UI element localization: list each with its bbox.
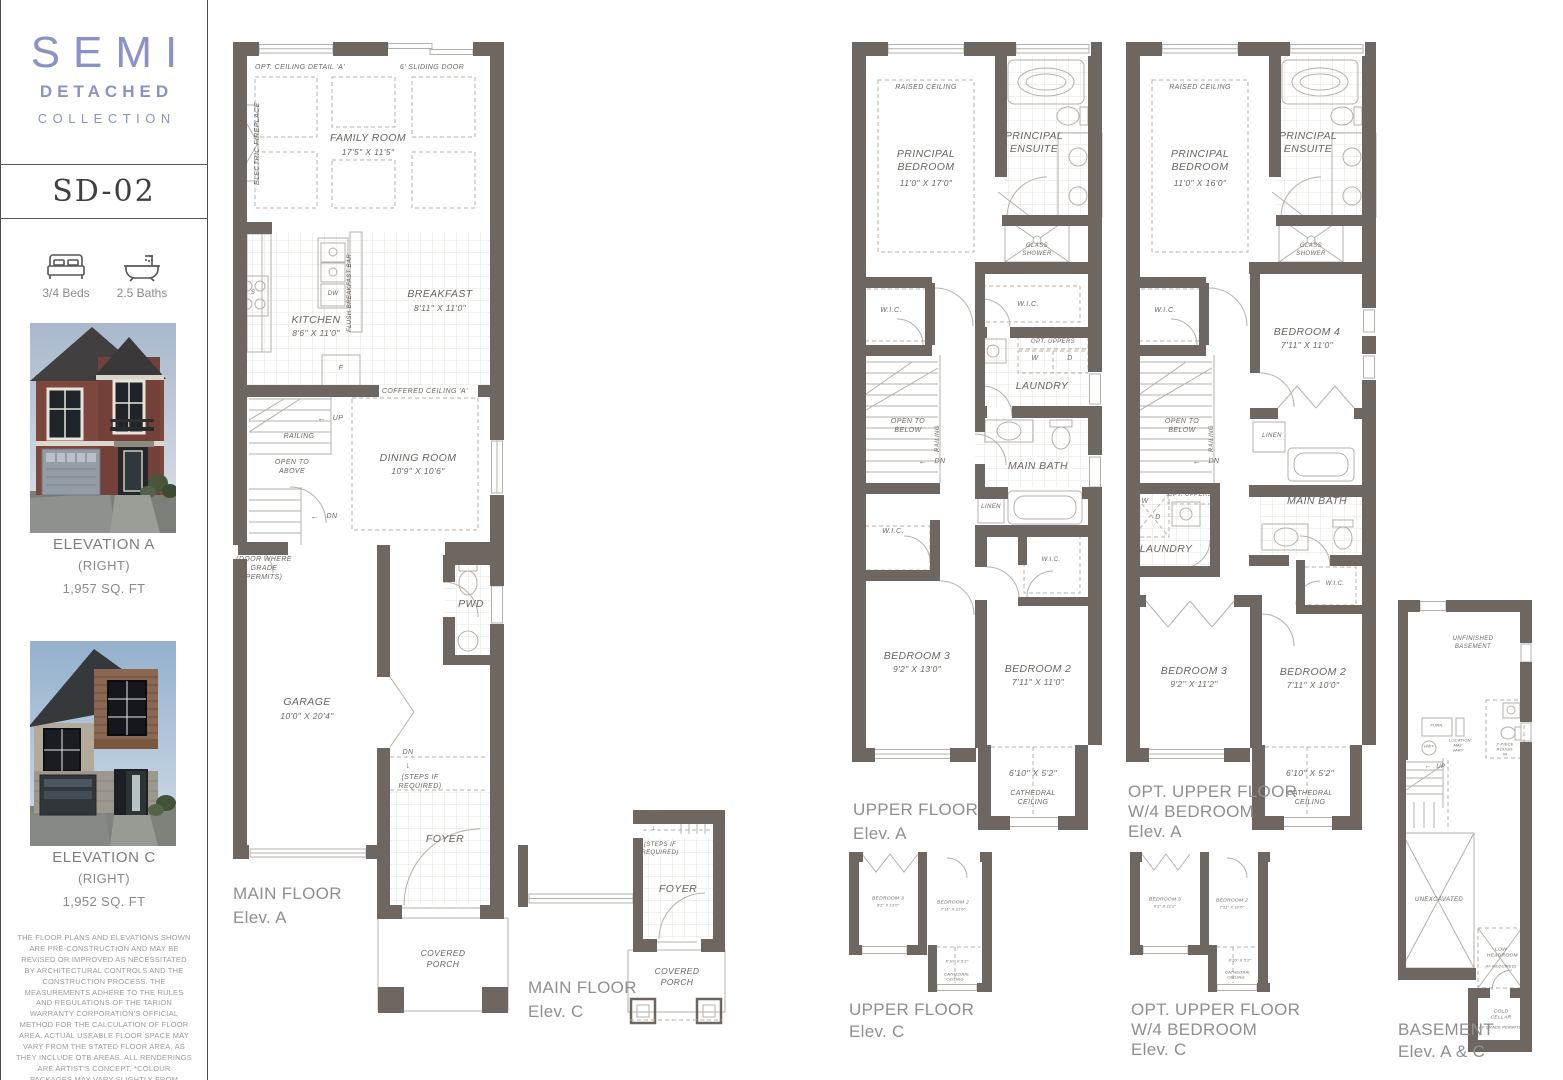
label-up: UP [333,415,344,424]
room-dim-bedroom3-a: 9'2" X 13'0" [893,664,941,675]
dn-arrow-hall: ↓ [406,760,411,771]
room-dim-breakfast: 8'11" X 11'0" [414,303,466,314]
label-if-required: (IF REQUIRED) [1486,964,1517,969]
mini-nook-dim-c: 6'10" X 5'2" [946,959,969,964]
room-dim-kitchen: 8'6" X 11'0" [292,328,339,339]
label-raised-ceiling-o: RAISED CEILING [1169,84,1231,93]
logo-line-collection: COLLECTION [0,111,208,126]
room-label-main-bath-a: MAIN BATH [1008,460,1068,473]
brochure-page: SEMI DETACHED COLLECTION SD-02 3/4 Beds … [0,0,1563,1080]
caption-main-a-1: MAIN FLOOR [233,884,342,904]
elevation-a-area: 1,957 SQ. FT [0,581,208,596]
label-linen-o: LINEN [1262,433,1282,441]
nook-dim-o: 6'10" X 5'2" [1286,768,1334,779]
label-railing-a: RAILING [935,425,941,452]
mini-label-bedroom2-c: BEDROOM 2 [937,899,969,905]
room-label-foyer: FOYER [426,833,464,846]
elevation-c-subtitle: (RIGHT) [0,871,208,886]
mini-dim-bedroom2-oc: 7'11" X 10'0" [1220,905,1245,910]
dn-arrow-main: ← [311,511,320,522]
room-label-covered-porch-c: COVERED PORCH [645,966,709,987]
caption-main-a-2: Elev. A [233,908,287,928]
room-dim-principal-bedroom-o: 11'0" X 16'0" [1174,178,1227,189]
label-steps-if-required-c: (STEPS IF REQUIRED) [635,842,685,857]
logo-line-semi: SEMI [0,28,208,78]
mini-cathedral-oc: CATHEDRAL CEILING [1225,970,1247,980]
label-opt-coffered: OPT. COFFERED CEILING 'A' [362,388,467,397]
label-dryer-a: D [1067,355,1072,364]
label-cathedral-a: CATHEDRAL CEILING [1002,790,1064,808]
label-hwt: HWT [1424,744,1434,749]
label-washer-o: W [1141,498,1148,507]
label-opt-ceiling-detail: OPT. CEILING DETAIL 'A' [255,64,345,73]
elevation-a-title: ELEVATION A [0,536,208,553]
label-washer-a: W [1031,355,1038,364]
caption-upper-a-1: UPPER FLOOR [853,800,978,820]
room-label-kitchen: KITCHEN [292,314,341,327]
label-flush-breakfast-bar: FLUSH BREAKFAST BAR [347,254,353,332]
elevation-a-rendering [30,323,176,533]
elevation-c-rendering [30,641,176,846]
caption-upper-c-1: UPPER FLOOR [849,1000,974,1020]
label-dishwasher: DW [328,291,339,299]
up-arrow-basement: ← [1424,763,1431,772]
room-label-bedroom2-a: BEDROOM 2 [1005,663,1072,676]
mini-dim-bedroom2-c: 7'11" X 11'0" [941,907,966,912]
label-glass-shower-o: GLASS SHOWER [1288,243,1334,258]
dn-arrow-o: ← [1193,456,1202,467]
label-raised-ceiling-a: RAISED CEILING [895,84,957,93]
room-dim-bedroom3-o: 9'2" X 11'2" [1170,679,1217,690]
label-furnace: FURN. [1430,723,1443,728]
mini-nook-dim-oc: 6'10" X 5'2" [1229,958,1252,963]
label-sliding-door: 6' SLIDING DOOR [400,64,464,73]
mini-label-bedroom3-c: BEDROOM 3 [872,895,904,901]
bed-icon [44,252,88,282]
mini-label-bedroom3-oc: BEDROOM 3 [1149,896,1181,902]
label-stove: S [251,290,255,298]
room-label-breakfast: BREAKFAST [407,288,472,301]
caption-basement-1: BASEMENT [1398,1020,1494,1040]
label-unexcavated: UNEXCAVATED [1415,897,1463,905]
label-railing-o: RAILING [1209,425,1215,452]
elevation-c-area: 1,952 SQ. FT [0,894,208,909]
label-up-basement: UP [1436,764,1445,772]
sidebar-rule-top [0,164,208,165]
room-label-principal-ensuite-o: PRINCIPAL ENSUITE [1266,130,1350,156]
label-open-to-below-o: OPEN TO BELOW [1153,418,1211,436]
label-low-headroom: LOW HEADROOM [1487,946,1516,958]
room-label-laundry-a: LAUNDRY [1016,380,1069,393]
label-location-may-vary: LOCATION MAY VARY [1449,738,1467,753]
label-wic1-a: W.I.C. [880,307,902,316]
beds-count: 3/4 Beds [42,286,89,300]
caption-opt-a-1: OPT. UPPER FLOOR [1128,782,1297,802]
caption-main-c-2: Elev. C [528,1002,584,1022]
elevation-c-title: ELEVATION C [0,849,208,866]
caption-basement-2: Elev. A & C [1398,1042,1485,1062]
model-number: SD-02 [0,174,208,209]
up-arrow: ← [318,413,327,424]
label-open-to-below-a: OPEN TO BELOW [879,418,937,436]
room-dim-dining: 10'9" X 10'6" [391,466,444,477]
caption-upper-a-2: Elev. A [853,824,907,844]
caption-opt-c-2: W/4 BEDROOM [1131,1020,1257,1040]
label-open-to-above: OPEN TO ABOVE [263,459,321,477]
label-cold-cellar: COLD CELLAR [1489,1008,1514,1020]
room-label-bedroom2-o: BEDROOM 2 [1280,666,1347,679]
room-dim-garage: 10'0" X 20'4" [280,711,333,722]
room-label-principal-ensuite-a: PRINCIPAL ENSUITE [992,130,1076,156]
dn-arrow-a: ← [919,456,928,467]
label-door-where-grade: (DOOR WHERE GRADE PERMITS) [233,556,295,582]
nook-dim-a: 6'10" X 5'2" [1009,768,1057,779]
room-label-garage: GARAGE [283,696,330,709]
label-opt-uppers-o: OPT. UPPERS [1168,492,1212,500]
label-dn-hall: DN [403,749,414,758]
sidebar-rule-bottom [0,218,208,219]
caption-opt-c-1: OPT. UPPER FLOOR [1131,1000,1300,1020]
legal-disclaimer: THE FLOOR PLANS AND ELEVATIONS SHOWN ARE… [16,933,192,1080]
label-dryer-o: D [1155,514,1160,523]
bath-icon [122,250,162,282]
mini-dim-bedroom3-c: 9'2" X 13'0" [877,903,900,908]
label-glass-shower-a: GLASS SHOWER [1014,243,1060,258]
room-dim-principal-bedroom-a: 11'0" X 17'0" [900,178,953,189]
label-rough-in: 2-PIECE ROUGH-IN [1497,742,1514,757]
caption-opt-c-3: Elev. C [1131,1040,1187,1060]
logo-line-detached: DETACHED [0,82,208,102]
label-dn-c: DN [650,815,659,823]
label-wic1-o: W.I.C. [1154,307,1176,316]
room-label-family: FAMILY ROOM [330,132,406,145]
caption-opt-a-3: Elev. A [1128,822,1182,842]
room-label-bedroom3-o: BEDROOM 3 [1161,665,1228,678]
label-railing-main: RAILING [284,433,315,442]
mini-label-bedroom2-oc: BEDROOM 2 [1216,897,1248,903]
label-steps-if-required: (STEPS IF REQUIRED) [392,774,448,792]
dn-arrow-c: ↓ [652,825,656,834]
room-label-bedroom4: BEDROOM 4 [1274,326,1341,339]
room-label-pwd: PWD [458,598,484,611]
room-dim-bedroom4: 7'11" X 11'0" [1281,340,1333,351]
label-dn-o: DN [1209,458,1220,467]
room-dim-bedroom2-a: 7'11" X 11'0" [1012,677,1064,688]
room-label-principal-bedroom-o: PRINCIPAL BEDROOM [1154,148,1246,174]
label-wic3-a: W.I.C. [882,528,904,537]
label-dn-main: DN [327,513,338,522]
label-wic4-a: W.I.C. [1042,557,1061,565]
room-label-foyer-c: FOYER [659,883,697,896]
room-label-dining: DINING ROOM [380,452,457,465]
room-label-laundry-o: LAUNDRY [1140,543,1193,556]
baths-count: 2.5 Baths [117,286,168,300]
mini-dim-bedroom3-oc: 9'2" X 11'2" [1154,904,1176,909]
room-label-covered-porch: COVERED PORCH [407,948,479,969]
elevation-a-subtitle: (RIGHT) [0,558,208,573]
label-wic2-a: W.I.C. [1017,301,1039,310]
caption-upper-c-2: Elev. C [849,1022,905,1042]
label-electric-fireplace: ELECTRIC FIREPLACE [254,102,261,185]
room-dim-bedroom2-o: 7'11" X 10'0" [1287,680,1340,691]
room-label-main-bath-o: MAIN BATH [1287,495,1347,508]
label-fridge: F [339,365,344,374]
room-label-bedroom3-a: BEDROOM 3 [884,650,951,663]
caption-main-c-1: MAIN FLOOR [528,978,637,998]
room-dim-family: 17'5" X 11'5" [342,147,395,158]
label-unfinished-basement: UNFINISHED BASEMENT [1442,636,1504,651]
label-linen-a: LINEN [981,504,1001,512]
label-wic5-o: W.I.C. [1326,581,1345,589]
caption-opt-a-2: W/4 BEDROOM [1128,802,1254,822]
mini-cathedral-c: CATHEDRAL CEILING [944,972,966,982]
label-opt-uppers-a: OPT. UPPERS [1031,339,1075,347]
label-dn-a: DN [935,458,946,467]
room-label-principal-bedroom-a: PRINCIPAL BEDROOM [880,148,972,174]
